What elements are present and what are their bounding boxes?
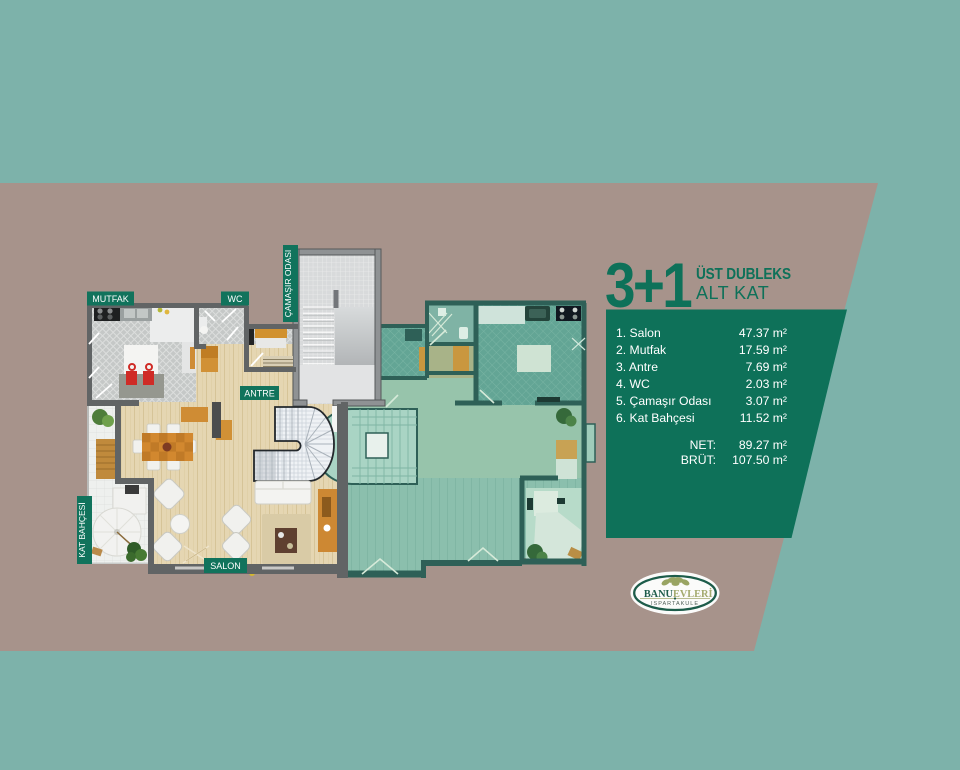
svg-text:WC: WC: [228, 294, 243, 304]
svg-text:ÇAMAŞIR ODASI: ÇAMAŞIR ODASI: [283, 250, 293, 318]
svg-text:ISPARTAKULE: ISPARTAKULE: [651, 601, 699, 607]
svg-text:SALON: SALON: [210, 561, 241, 571]
svg-text:ANTRE: ANTRE: [244, 389, 275, 399]
svg-text:KAT BAHÇESİ: KAT BAHÇESİ: [77, 502, 87, 557]
svg-text:MUTFAK: MUTFAK: [92, 294, 129, 304]
